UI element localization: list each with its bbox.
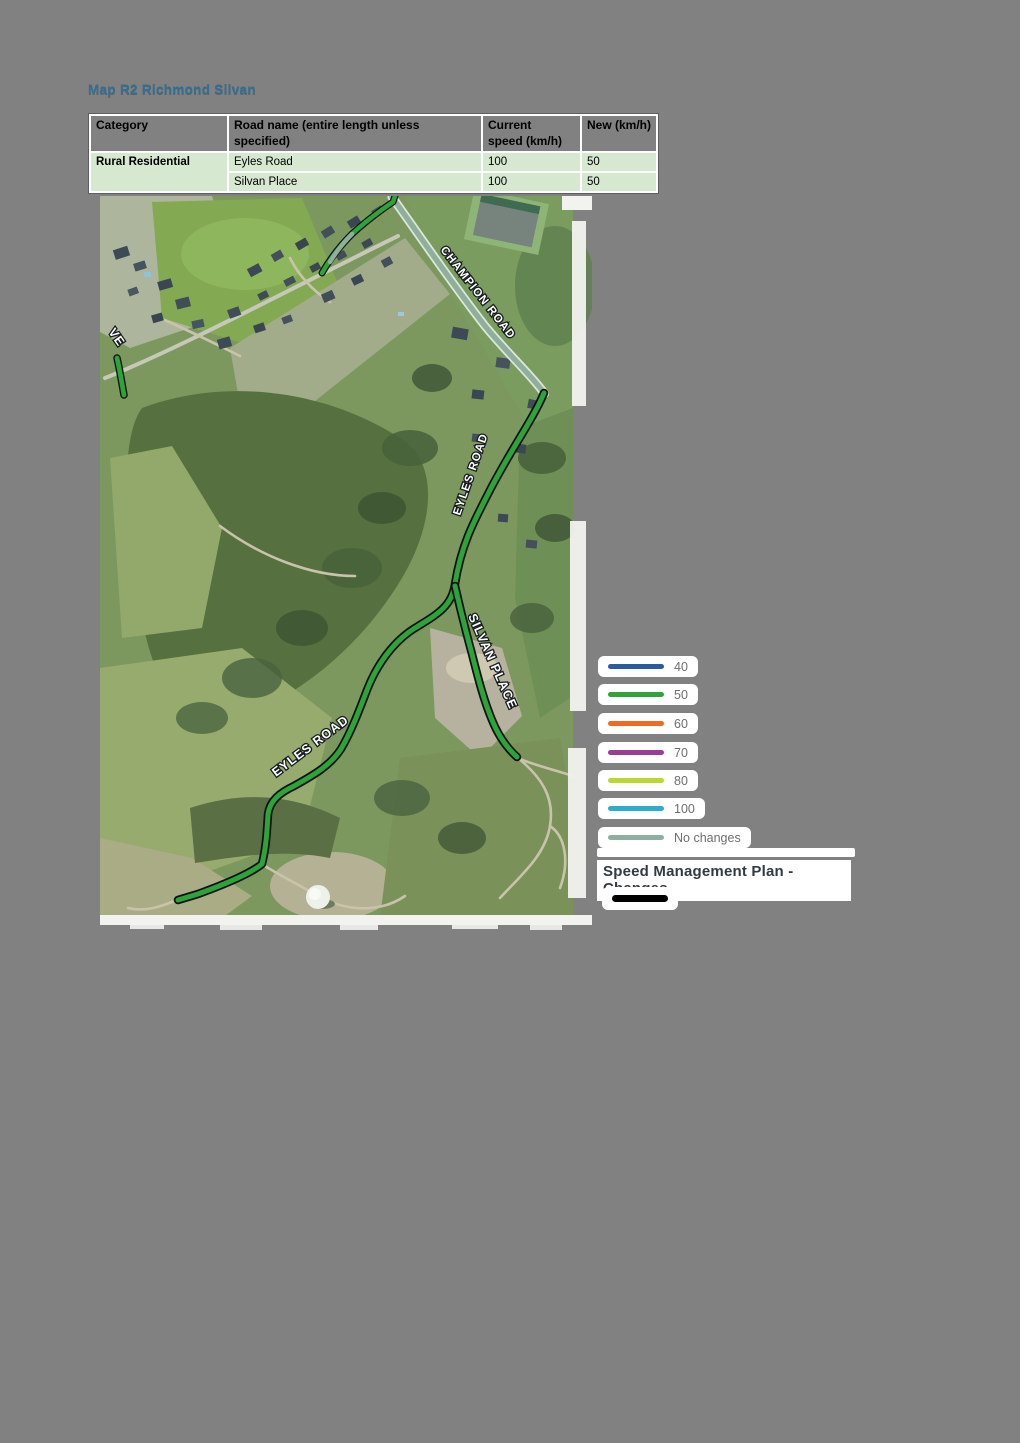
aerial-map: CHAMPION ROAD EYLES ROAD EYLES ROAD SILV… (100, 196, 592, 934)
legend-item-50: 50 (598, 684, 698, 705)
legend-line-80 (608, 778, 664, 783)
new-speed-cell: 50 (581, 152, 657, 172)
current-speed-cell: 100 (482, 152, 581, 172)
legend-label-100: 100 (674, 802, 695, 816)
legend-label-no-changes: No changes (674, 831, 741, 845)
header-current-speed: Current speed (km/h) (482, 115, 581, 152)
header-category: Category (90, 115, 228, 152)
road-cell: Eyles Road (228, 152, 482, 172)
legend-label-80: 80 (674, 774, 688, 788)
page-title: Map R2 Richmond Silvan (88, 82, 256, 97)
legend-label-60: 60 (674, 717, 688, 731)
road-cell: Silvan Place (228, 172, 482, 192)
category-cell: Rural Residential (90, 152, 228, 192)
document-page: Map R2 Richmond Silvan Category Road nam… (0, 0, 1020, 1443)
header-road-name: Road name (entire length unless specifie… (228, 115, 482, 152)
new-speed-cell: 50 (581, 172, 657, 192)
legend-line-70 (608, 750, 664, 755)
legend-line-40 (608, 664, 664, 669)
legend-label-70: 70 (674, 746, 688, 760)
legend-item-80: 80 (598, 770, 698, 791)
aerial-map-svg: CHAMPION ROAD EYLES ROAD EYLES ROAD SILV… (100, 196, 592, 934)
legend-item-60: 60 (598, 713, 698, 734)
legend-line-100 (608, 806, 664, 811)
legend-item-no-changes: No changes (598, 827, 751, 848)
legend-item-changes (602, 887, 678, 910)
legend-line-60 (608, 721, 664, 726)
legend-line-50 (608, 692, 664, 697)
legend-item-40: 40 (598, 656, 698, 677)
legend-separator-bar (597, 848, 855, 857)
table-header-row: Category Road name (entire length unless… (90, 115, 657, 152)
current-speed-cell: 100 (482, 172, 581, 192)
aerial-terrain (100, 196, 592, 920)
legend-item-70: 70 (598, 742, 698, 763)
header-new-speed: New (km/h) (581, 115, 657, 152)
speed-table: Category Road name (entire length unless… (89, 114, 658, 193)
legend-line-changes (612, 895, 668, 902)
legend-label-50: 50 (674, 688, 688, 702)
legend-item-100: 100 (598, 798, 705, 819)
legend-label-40: 40 (674, 660, 688, 674)
legend-line-no-changes (608, 835, 664, 840)
table-row: Rural Residential Eyles Road 100 50 (90, 152, 657, 172)
